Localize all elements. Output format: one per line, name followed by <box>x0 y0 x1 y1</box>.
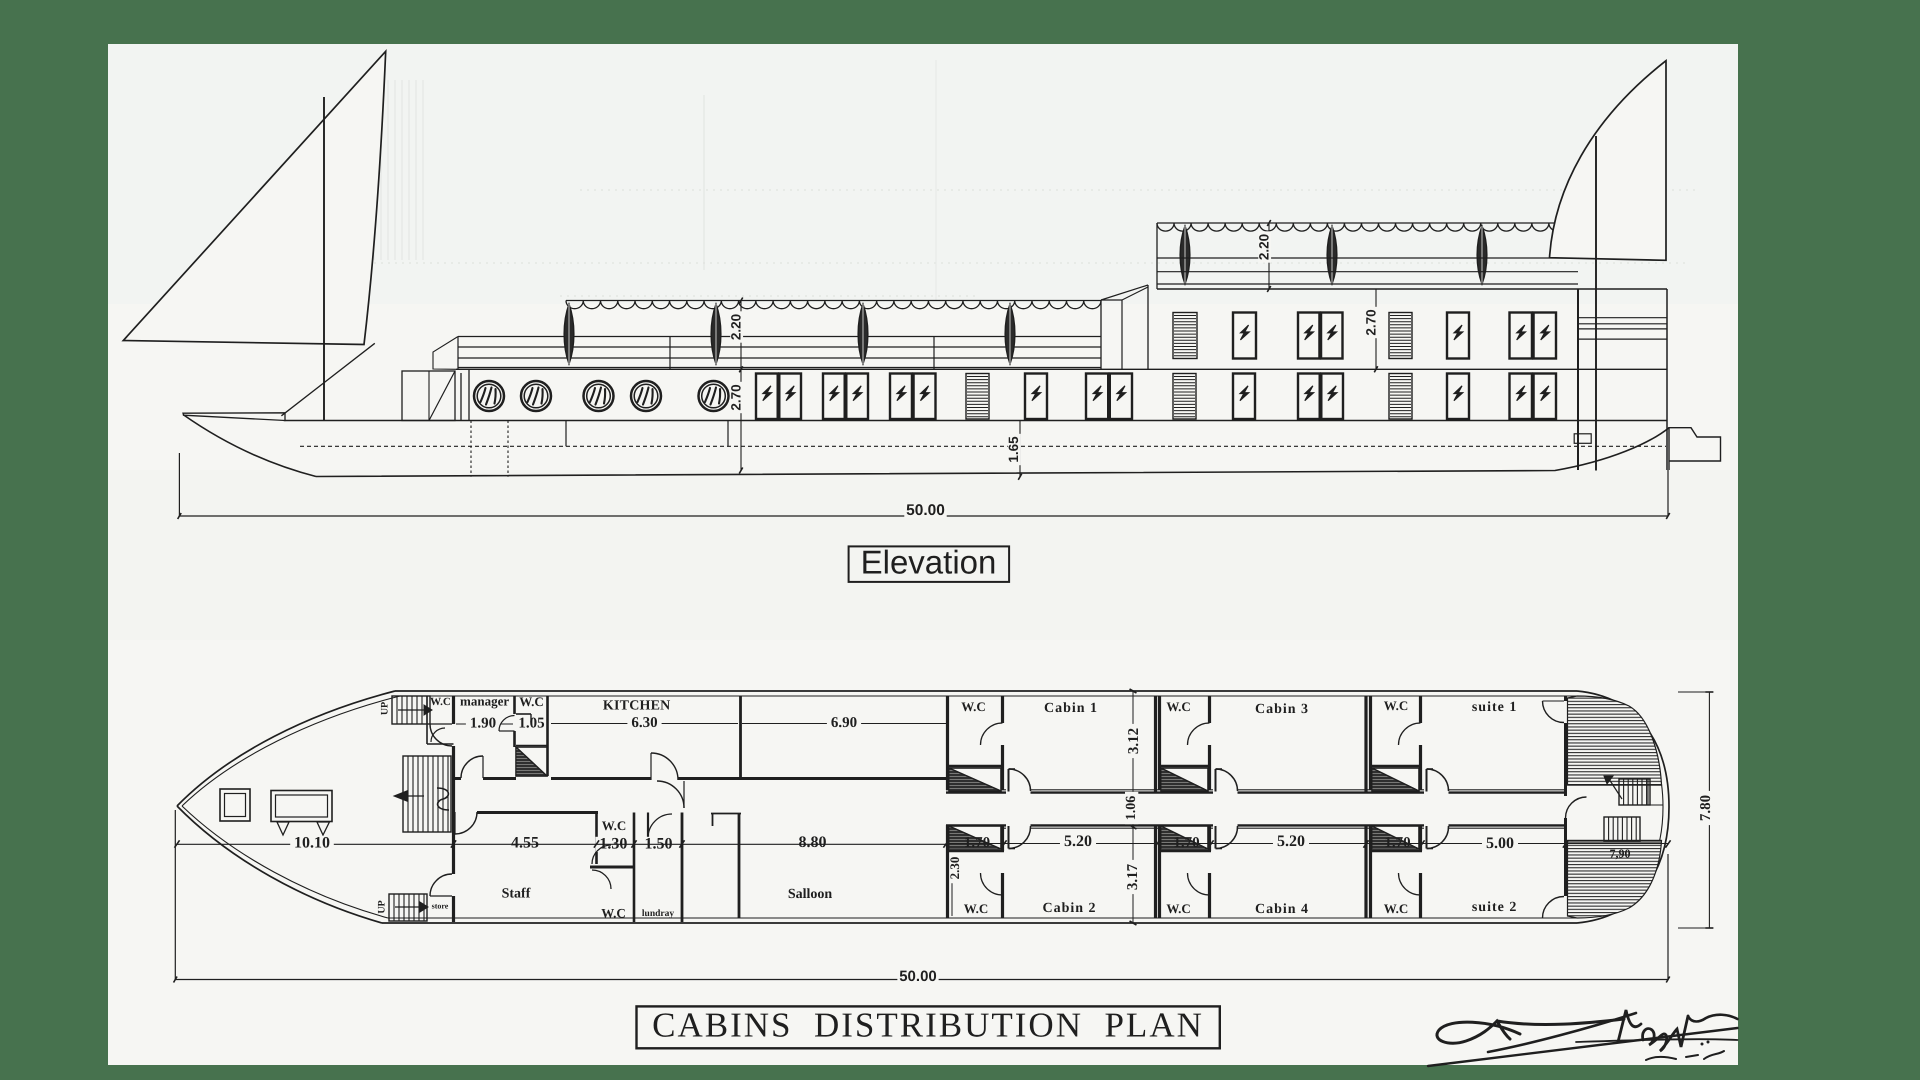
svg-text:suite 1: suite 1 <box>1472 700 1518 715</box>
svg-text:Cabin 3: Cabin 3 <box>1255 702 1309 717</box>
svg-text:50.00: 50.00 <box>906 502 945 519</box>
svg-text:Staff: Staff <box>502 887 531 902</box>
svg-text:7,90: 7,90 <box>1610 846 1631 860</box>
svg-text:50.00: 50.00 <box>899 968 937 985</box>
svg-text:1.06: 1.06 <box>1124 796 1139 821</box>
svg-text:2.70: 2.70 <box>1364 309 1379 335</box>
svg-text:1.70: 1.70 <box>1173 835 1199 851</box>
svg-text:Cabin 2: Cabin 2 <box>1042 901 1096 916</box>
svg-text:W.C: W.C <box>1384 698 1408 713</box>
svg-text:W.C: W.C <box>519 694 543 709</box>
svg-text:1.65: 1.65 <box>1006 436 1021 463</box>
svg-text:UP: UP <box>376 900 387 913</box>
svg-text:1.70: 1.70 <box>1384 835 1410 851</box>
svg-text:3.17: 3.17 <box>1125 863 1141 890</box>
svg-text:W.C: W.C <box>601 905 625 920</box>
svg-text:5.00: 5.00 <box>1486 835 1514 852</box>
svg-text:W.C: W.C <box>1166 699 1190 714</box>
svg-text:2.20: 2.20 <box>1257 234 1272 260</box>
svg-text:Cabin 4: Cabin 4 <box>1255 902 1309 917</box>
svg-text:4.55: 4.55 <box>511 835 539 852</box>
svg-text:W.C: W.C <box>602 818 626 833</box>
svg-text:3.12: 3.12 <box>1126 728 1142 754</box>
svg-text:store: store <box>432 901 449 910</box>
svg-text:CABINS DISTRIBUTION PLAN: CABINS DISTRIBUTION PLAN <box>652 1006 1204 1045</box>
svg-text:manager: manager <box>460 693 509 708</box>
svg-text:Cabin 1: Cabin 1 <box>1044 701 1098 716</box>
svg-text:UP: UP <box>379 702 390 715</box>
svg-text:1.90: 1.90 <box>470 715 496 731</box>
svg-text:2.30: 2.30 <box>947 857 962 880</box>
svg-text:W.C: W.C <box>430 696 451 708</box>
svg-text:W.C: W.C <box>961 699 985 714</box>
svg-text:10.10: 10.10 <box>294 835 330 852</box>
svg-text:2.70: 2.70 <box>729 384 744 410</box>
svg-text:Salloon: Salloon <box>788 887 833 902</box>
svg-text:suite 2: suite 2 <box>1472 900 1518 915</box>
svg-text:W.C: W.C <box>1166 901 1190 916</box>
svg-text:W.C: W.C <box>1384 901 1408 916</box>
svg-text:Elevation: Elevation <box>861 544 997 581</box>
svg-text:lundray: lundray <box>642 909 674 919</box>
svg-text:1.70: 1.70 <box>964 835 990 851</box>
svg-text:2.20: 2.20 <box>729 314 744 340</box>
svg-text:W.C: W.C <box>964 901 988 916</box>
svg-text:8.80: 8.80 <box>799 834 827 851</box>
svg-text:7.80: 7.80 <box>1698 795 1714 821</box>
svg-text:5.20: 5.20 <box>1277 833 1305 850</box>
svg-text:5.20: 5.20 <box>1064 833 1092 850</box>
svg-text:6.90: 6.90 <box>831 715 857 731</box>
svg-text:KITCHEN: KITCHEN <box>603 699 671 714</box>
svg-text:6.30: 6.30 <box>631 715 657 731</box>
